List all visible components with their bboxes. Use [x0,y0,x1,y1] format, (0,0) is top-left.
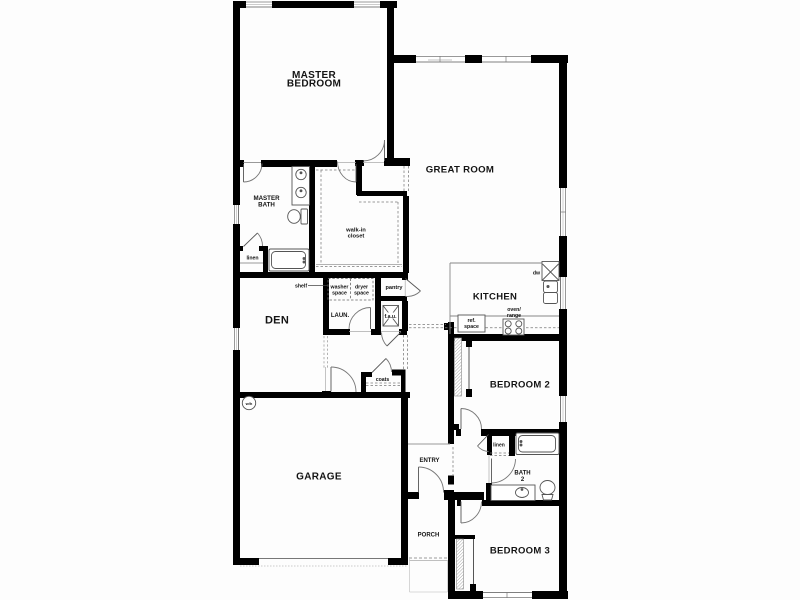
svg-text:range: range [507,313,521,319]
svg-text:space: space [464,324,479,330]
svg-text:DEN: DEN [265,315,289,327]
svg-text:w/h: w/h [245,401,253,406]
svg-text:BEDROOM: BEDROOM [287,79,341,90]
svg-text:LAUN.: LAUN. [331,313,350,319]
svg-text:BEDROOM 3: BEDROOM 3 [490,546,550,557]
svg-text:shelf: shelf [295,284,307,290]
svg-text:KITCHEN: KITCHEN [473,292,517,303]
svg-text:space: space [332,291,347,297]
svg-text:linen: linen [493,443,505,449]
svg-text:ENTRY: ENTRY [419,458,439,464]
svg-text:f.a.u.: f.a.u. [384,314,397,320]
svg-text:dw: dw [533,271,541,277]
svg-text:pantry: pantry [385,285,403,291]
svg-text:PORCH: PORCH [418,533,440,539]
svg-text:BATH: BATH [514,471,530,477]
svg-text:linen: linen [246,256,258,262]
svg-text:space: space [354,291,369,297]
svg-text:closet: closet [348,234,365,240]
svg-text:GARAGE: GARAGE [296,472,342,483]
svg-text:BEDROOM 2: BEDROOM 2 [490,380,550,391]
svg-text:GREAT ROOM: GREAT ROOM [426,165,494,176]
svg-text:coats: coats [376,377,390,383]
svg-text:BATH: BATH [258,202,275,209]
